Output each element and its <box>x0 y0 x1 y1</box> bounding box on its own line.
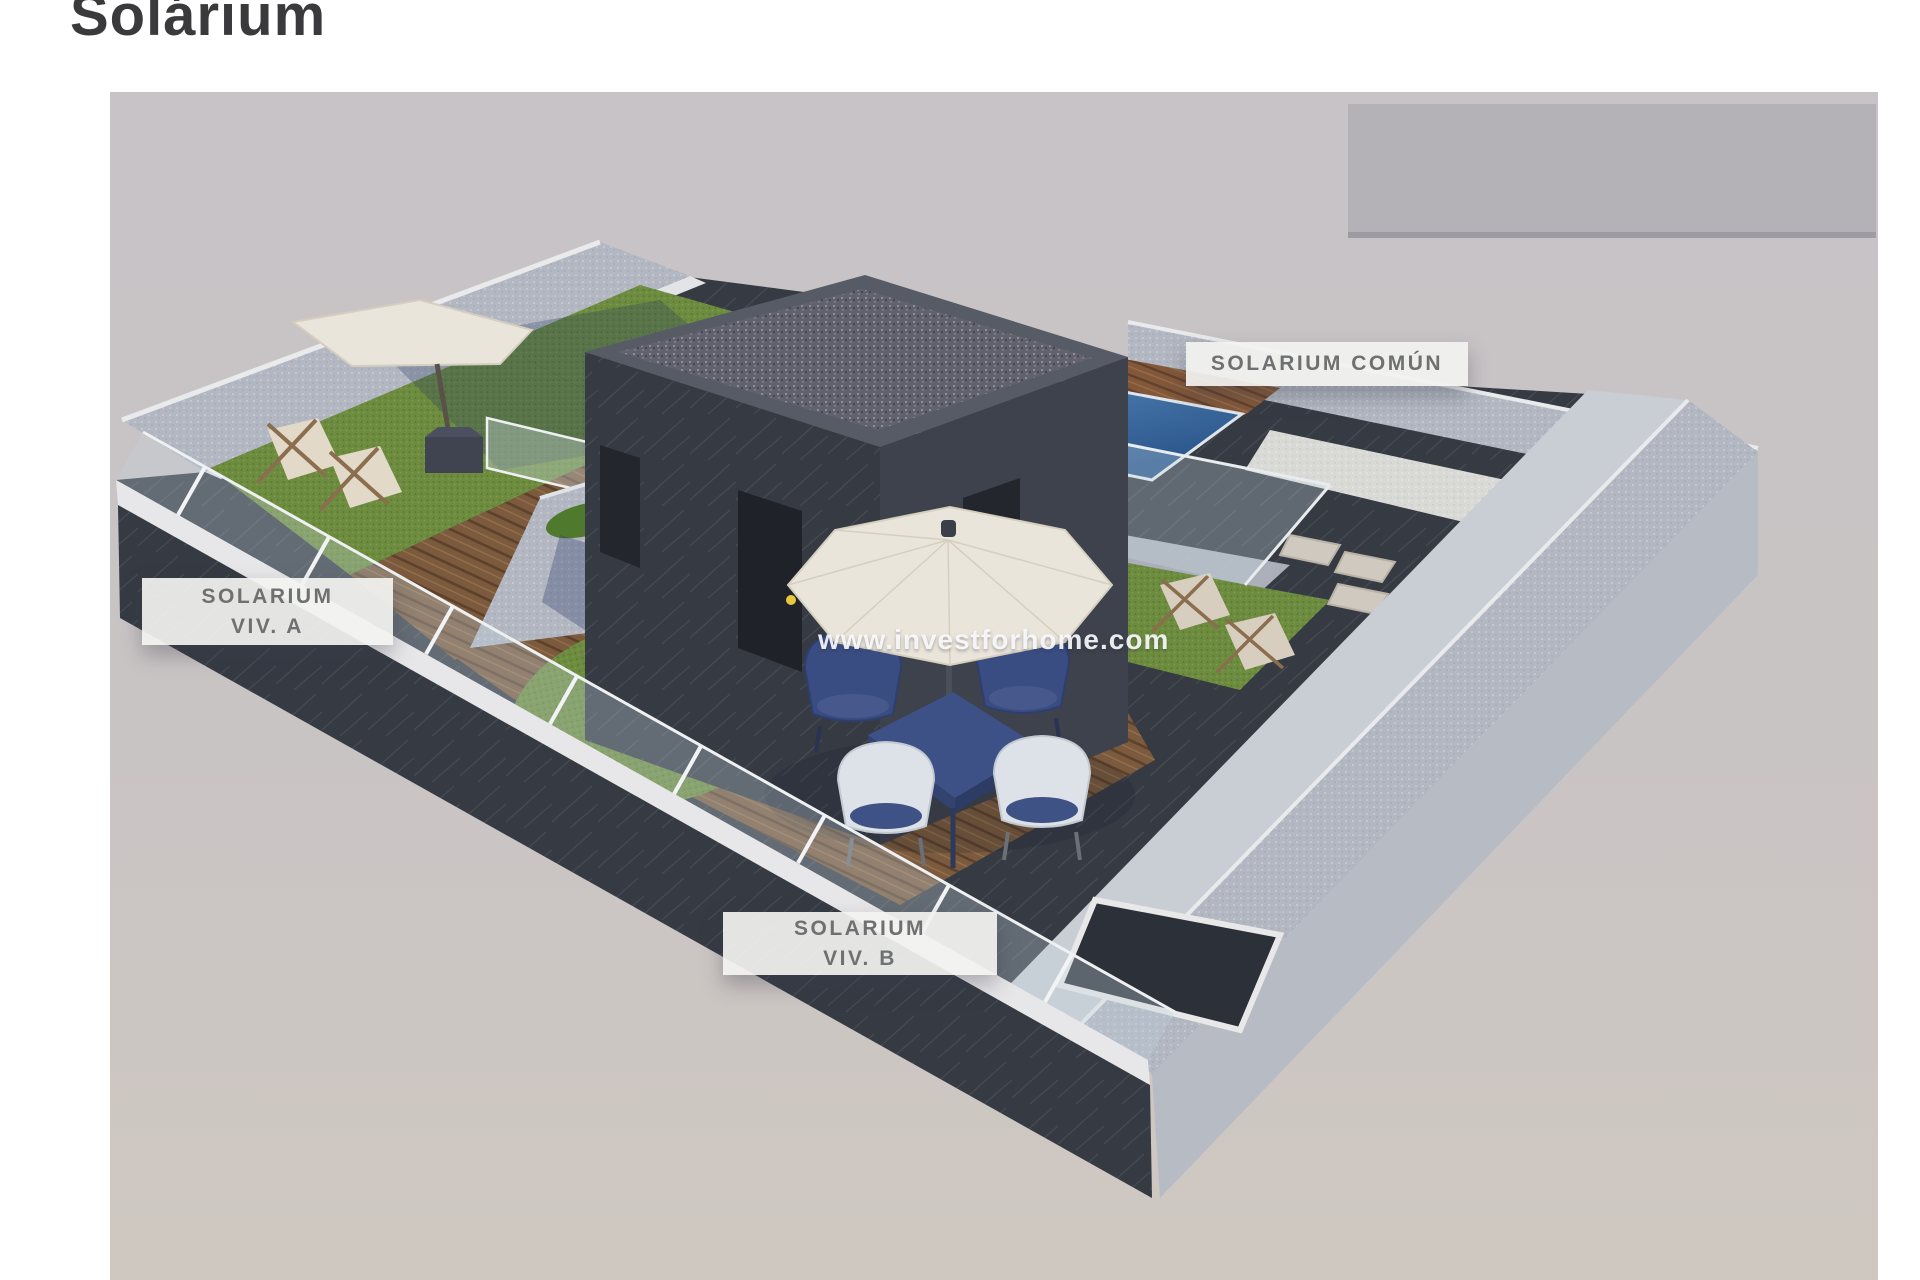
page-title: Solárium <box>70 0 326 49</box>
label-line: VIV. B <box>823 944 897 973</box>
label-line: VIV. A <box>231 612 304 641</box>
label-solarium-viv-a: SOLARIUM VIV. A <box>142 578 393 645</box>
label-line: SOLARIUM COMÚN <box>1211 349 1443 378</box>
watermark: www.investforhome.com <box>818 624 1169 656</box>
label-line: SOLARIUM <box>794 914 926 943</box>
label-solarium-viv-b: SOLARIUM VIV. B <box>723 912 997 975</box>
render-page: Solárium <box>0 0 1920 1280</box>
label-line: SOLARIUM <box>202 582 334 611</box>
render-photo-area: SOLARIUM VIV. A SOLARIUM VIV. B SOLARIUM… <box>110 92 1878 1280</box>
label-solarium-comun: SOLARIUM COMÚN <box>1186 342 1468 386</box>
